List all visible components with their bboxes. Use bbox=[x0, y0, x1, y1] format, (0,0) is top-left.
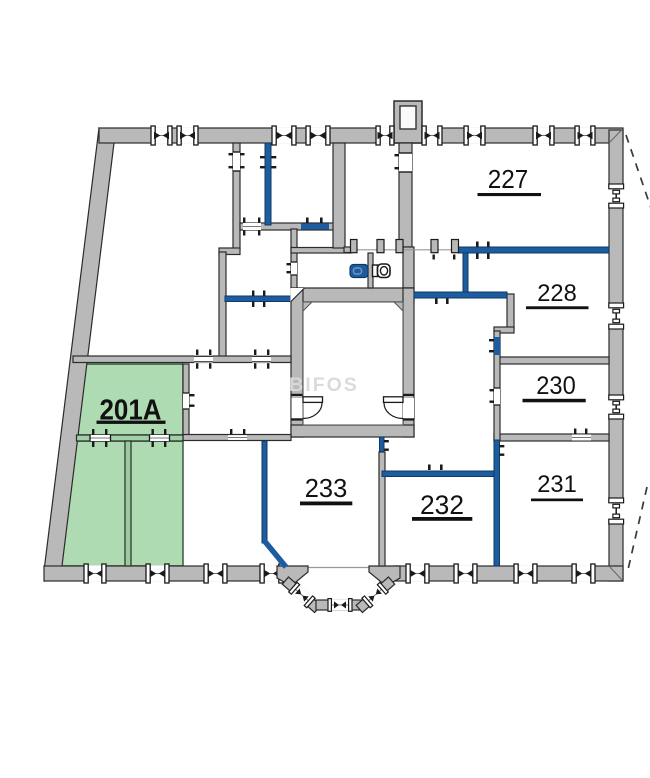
svg-text:BIFOS: BIFOS bbox=[289, 374, 359, 396]
svg-text:231: 231 bbox=[537, 471, 577, 498]
svg-text:233: 233 bbox=[305, 473, 348, 503]
svg-text:227: 227 bbox=[488, 164, 529, 194]
svg-text:232: 232 bbox=[420, 490, 464, 520]
svg-text:230: 230 bbox=[536, 372, 576, 400]
svg-text:228: 228 bbox=[537, 280, 577, 307]
